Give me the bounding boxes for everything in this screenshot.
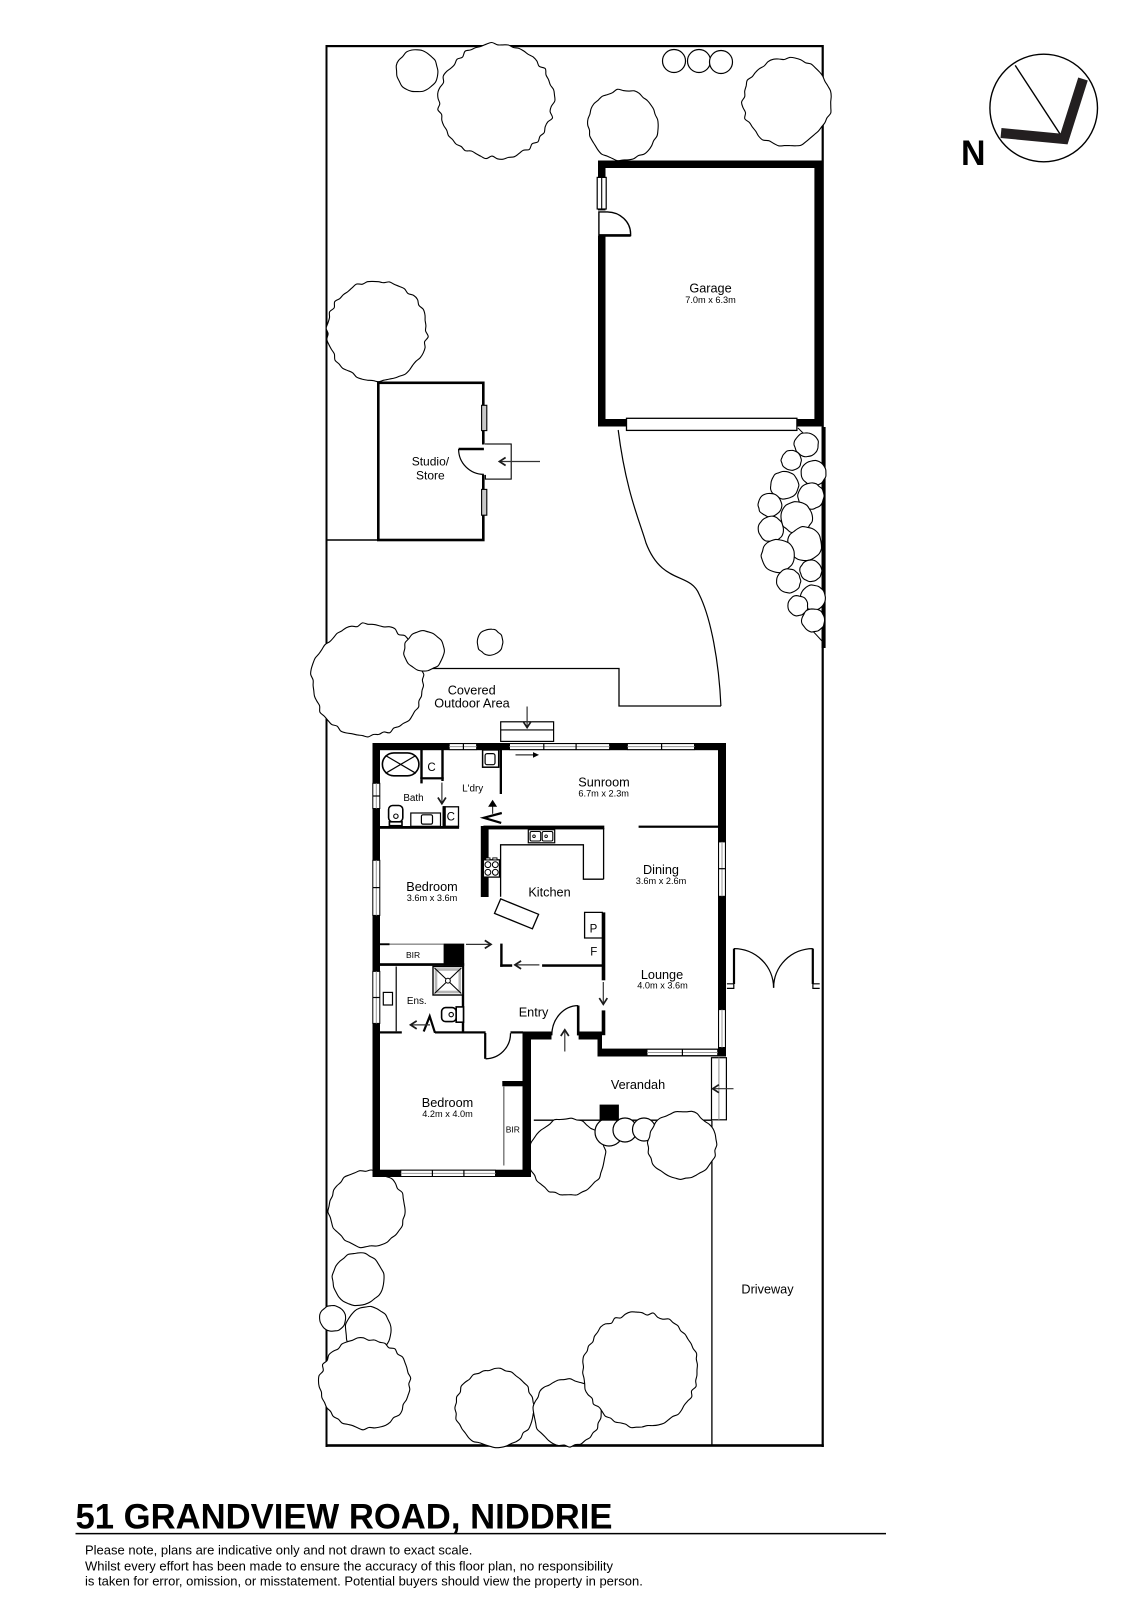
svg-text:6.7m x 2.3m: 6.7m x 2.3m [578,789,629,799]
svg-text:is taken for error, omission,: is taken for error, omission, or misstat… [85,1574,643,1589]
svg-text:C: C [427,762,435,774]
svg-text:N: N [961,134,986,173]
svg-text:4.2m x 4.0m: 4.2m x 4.0m [422,1109,473,1119]
svg-text:Store: Store [416,469,445,483]
svg-text:Entry: Entry [519,1005,549,1019]
svg-text:Verandah: Verandah [611,1078,665,1092]
svg-text:L'dry: L'dry [462,784,483,795]
svg-text:4.0m x 3.6m: 4.0m x 3.6m [637,981,688,991]
svg-text:Bath: Bath [403,793,423,804]
svg-text:51 GRANDVIEW ROAD, NIDDRIE: 51 GRANDVIEW ROAD, NIDDRIE [76,1498,613,1537]
svg-text:Please note, plans are indicat: Please note, plans are indicative only a… [85,1542,472,1557]
svg-text:Covered: Covered [448,684,496,698]
svg-text:Ens.: Ens. [407,996,427,1007]
svg-text:7.0m x 6.3m: 7.0m x 6.3m [685,295,736,305]
svg-text:C: C [447,812,455,824]
svg-text:Dining: Dining [643,863,679,877]
svg-text:Kitchen: Kitchen [528,885,570,899]
svg-text:F: F [590,947,597,959]
svg-text:Bedroom: Bedroom [422,1096,473,1110]
svg-text:Whilst every effort has been m: Whilst every effort has been made to ens… [85,1558,613,1573]
svg-text:Garage: Garage [689,282,731,296]
svg-text:BIR: BIR [406,950,420,960]
svg-text:P: P [590,924,598,936]
svg-text:Sunroom: Sunroom [578,775,629,789]
svg-text:BIR: BIR [506,1124,520,1134]
svg-text:Driveway: Driveway [741,1282,794,1296]
svg-text:Bedroom: Bedroom [406,880,457,894]
svg-text:Studio/: Studio/ [412,454,450,468]
svg-text:3.6m x 2.6m: 3.6m x 2.6m [636,876,687,886]
svg-text:3.6m x 3.6m: 3.6m x 3.6m [407,893,458,903]
svg-text:Outdoor Area: Outdoor Area [434,697,510,711]
